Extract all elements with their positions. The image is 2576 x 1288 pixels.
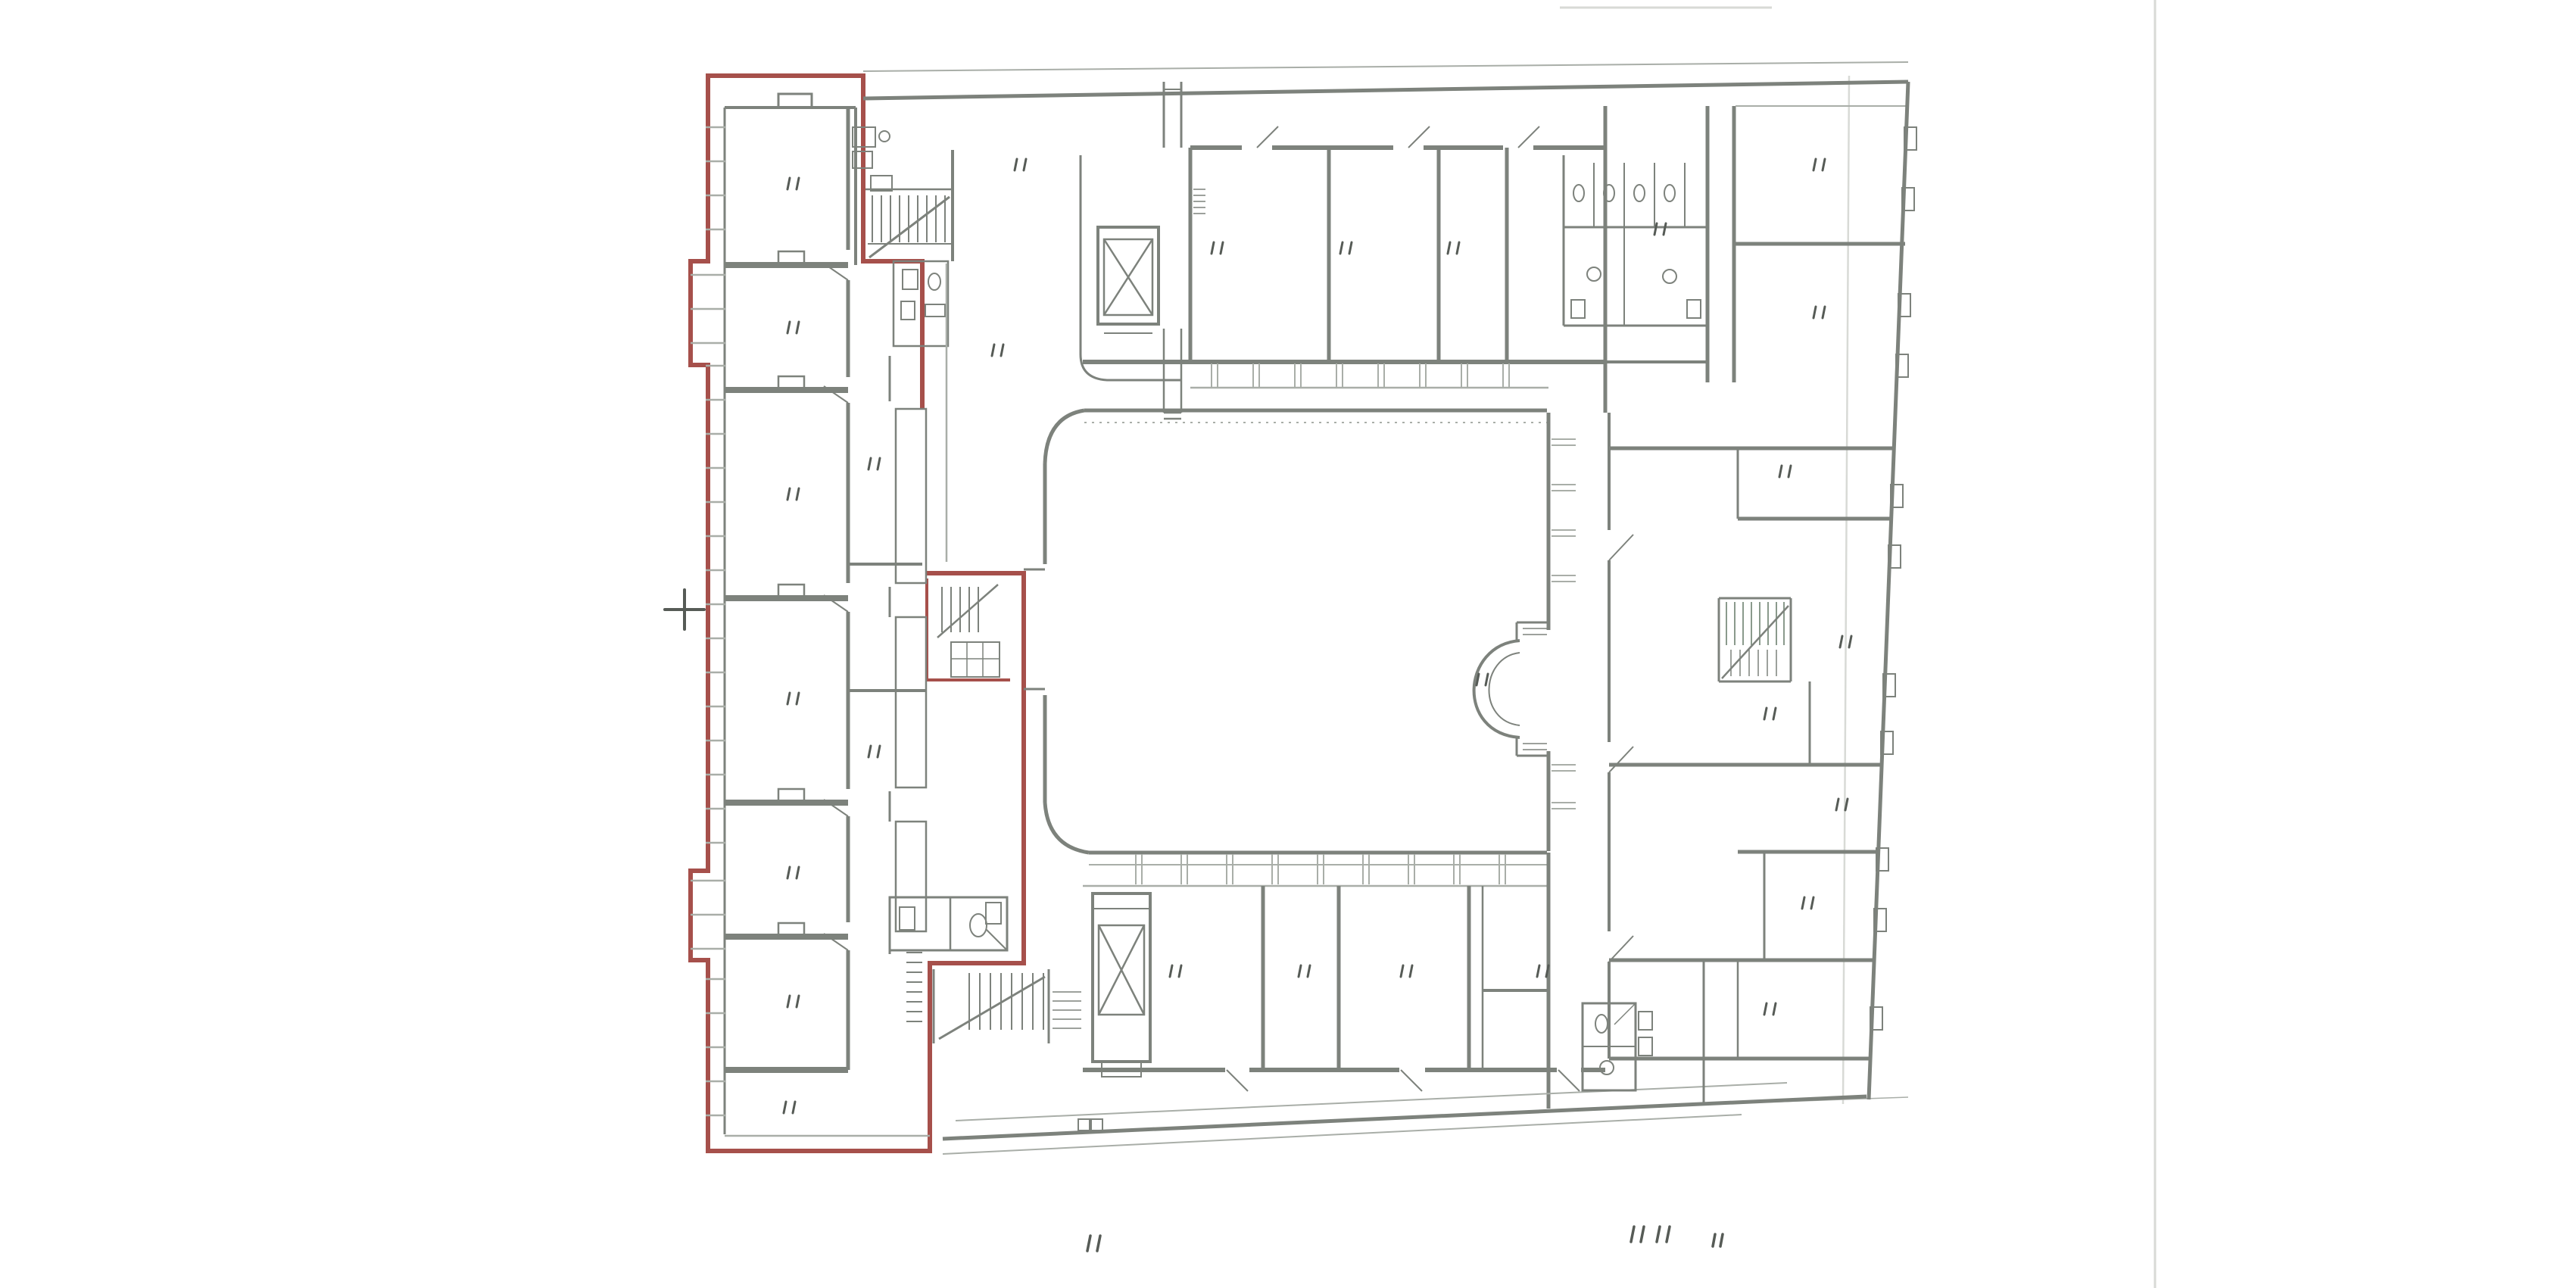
- stair-box-icon: [937, 585, 1000, 677]
- stair-bottom-left-icon: [906, 953, 1081, 1043]
- stair-right-icon: [1719, 598, 1791, 681]
- wc-cluster-bottom-icon: [1583, 960, 1704, 1104]
- window-ticks: [1212, 363, 1509, 388]
- scanned-page: [0, 0, 2576, 1288]
- right-facade: [1869, 82, 1916, 1099]
- window-ticks: [1136, 854, 1505, 884]
- annotation-marks: [1087, 1227, 1723, 1251]
- bottom-wing: [943, 853, 1867, 1154]
- elevator-top-icon: [1098, 227, 1181, 419]
- window-ticks: [1552, 439, 1576, 809]
- top-wing: [863, 82, 1908, 419]
- elevator-bottom-icon: [1093, 893, 1150, 1077]
- kitchen-fixtures-icon: [853, 127, 892, 191]
- right-wing: [1609, 413, 1894, 1059]
- floor-plan-scan: [0, 0, 2576, 1288]
- datum-cross-icon: [665, 590, 704, 629]
- floor-plan-drawing: [0, 0, 2576, 1288]
- stair-top-left-icon: [865, 150, 953, 261]
- courtyard: [1024, 410, 1576, 865]
- apse-bay: [1474, 622, 1548, 756]
- room-label-marks: [784, 159, 1851, 1113]
